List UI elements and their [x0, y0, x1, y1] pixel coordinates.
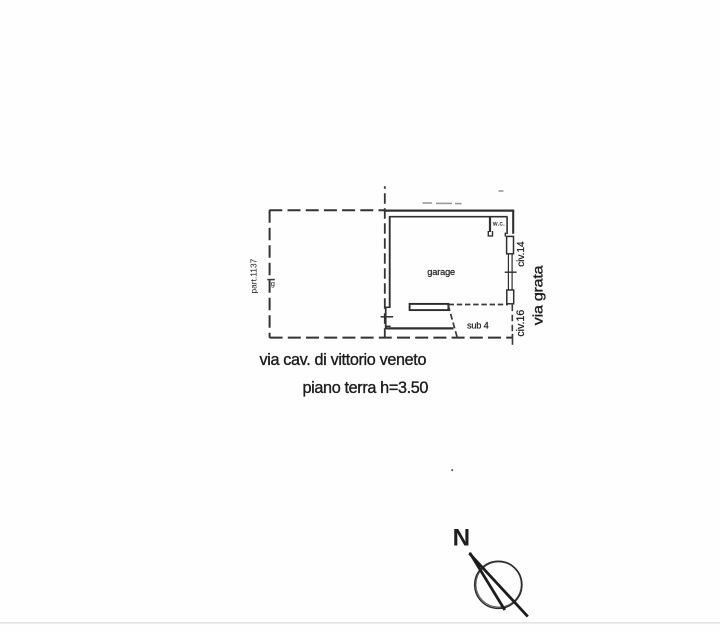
- svg-text:sub 4: sub 4: [467, 320, 489, 330]
- svg-text:civ.16: civ.16: [515, 310, 527, 337]
- svg-text:g: g: [271, 279, 275, 288]
- svg-text:part.1137: part.1137: [249, 258, 259, 293]
- svg-text:piano terra h=3.50: piano terra h=3.50: [303, 379, 429, 397]
- svg-text:via grata: via grata: [530, 265, 546, 325]
- svg-text:via cav. di vittorio veneto: via cav. di vittorio veneto: [260, 351, 427, 369]
- svg-text:civ.14: civ.14: [516, 241, 527, 267]
- svg-text:N: N: [453, 524, 470, 551]
- svg-text:garage: garage: [427, 267, 455, 277]
- svg-text:w.c.: w.c.: [492, 221, 505, 228]
